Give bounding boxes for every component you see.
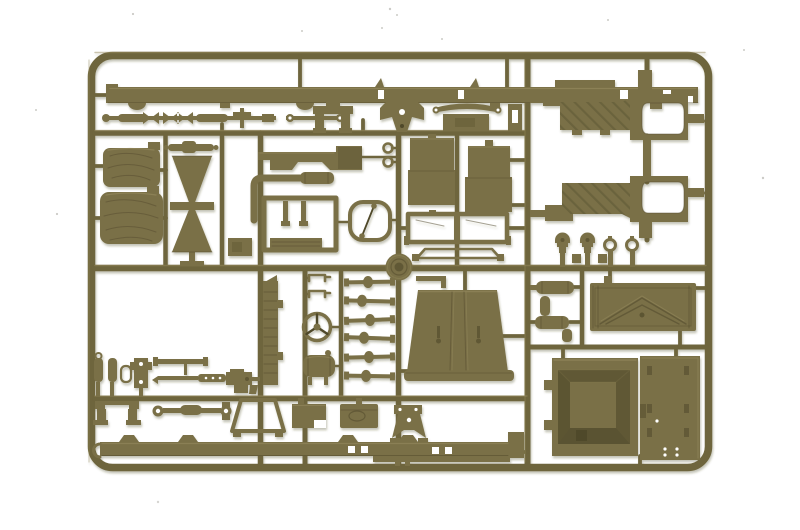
body-side-sill: [258, 146, 362, 170]
wiper-brackets: [309, 275, 330, 297]
headlights: [555, 233, 607, 268]
steering-wheel: [304, 314, 331, 341]
spring-shackles: [94, 353, 152, 397]
axle-shafts: [344, 276, 395, 383]
battery-box: [292, 398, 326, 428]
frame-bracket-small: [508, 104, 522, 131]
chassis-rail-lower: [94, 432, 525, 466]
tie-rod: [164, 141, 219, 153]
front-fender-lower: [530, 136, 704, 238]
seat-backs: [408, 134, 512, 212]
fuel-tank: [303, 350, 335, 385]
engine-hood: [404, 290, 514, 381]
engine-mount-bracket: [313, 98, 353, 133]
leaf-spring-assembly: [433, 104, 502, 132]
mufflers: [530, 281, 574, 342]
wheel-hub-disc: [386, 254, 413, 281]
tool-box: [340, 398, 378, 428]
canvas-seat-cushions: [100, 142, 163, 244]
brake-line-loop: [350, 202, 390, 240]
junction-box-part: [228, 238, 252, 256]
firewall-cowl-box: [544, 358, 638, 456]
radiator-support-frame: [170, 156, 214, 266]
air-intake-elbow: [416, 276, 446, 288]
sprue: [89, 53, 709, 468]
leaf-spring-pack: [263, 275, 283, 385]
seat-frame: [264, 198, 336, 250]
bumperette-bracket: [93, 401, 141, 425]
door-panel: [640, 356, 700, 460]
model-kit-sprue-photo: [0, 0, 800, 530]
windshield-frame: [404, 210, 511, 245]
blackout-lamps: [605, 236, 638, 267]
tailgate-panel: [590, 276, 696, 331]
sprue-photo-svg: [0, 0, 800, 530]
rear-drive-shaft: [153, 402, 232, 420]
towing-eyelets: [384, 144, 393, 167]
